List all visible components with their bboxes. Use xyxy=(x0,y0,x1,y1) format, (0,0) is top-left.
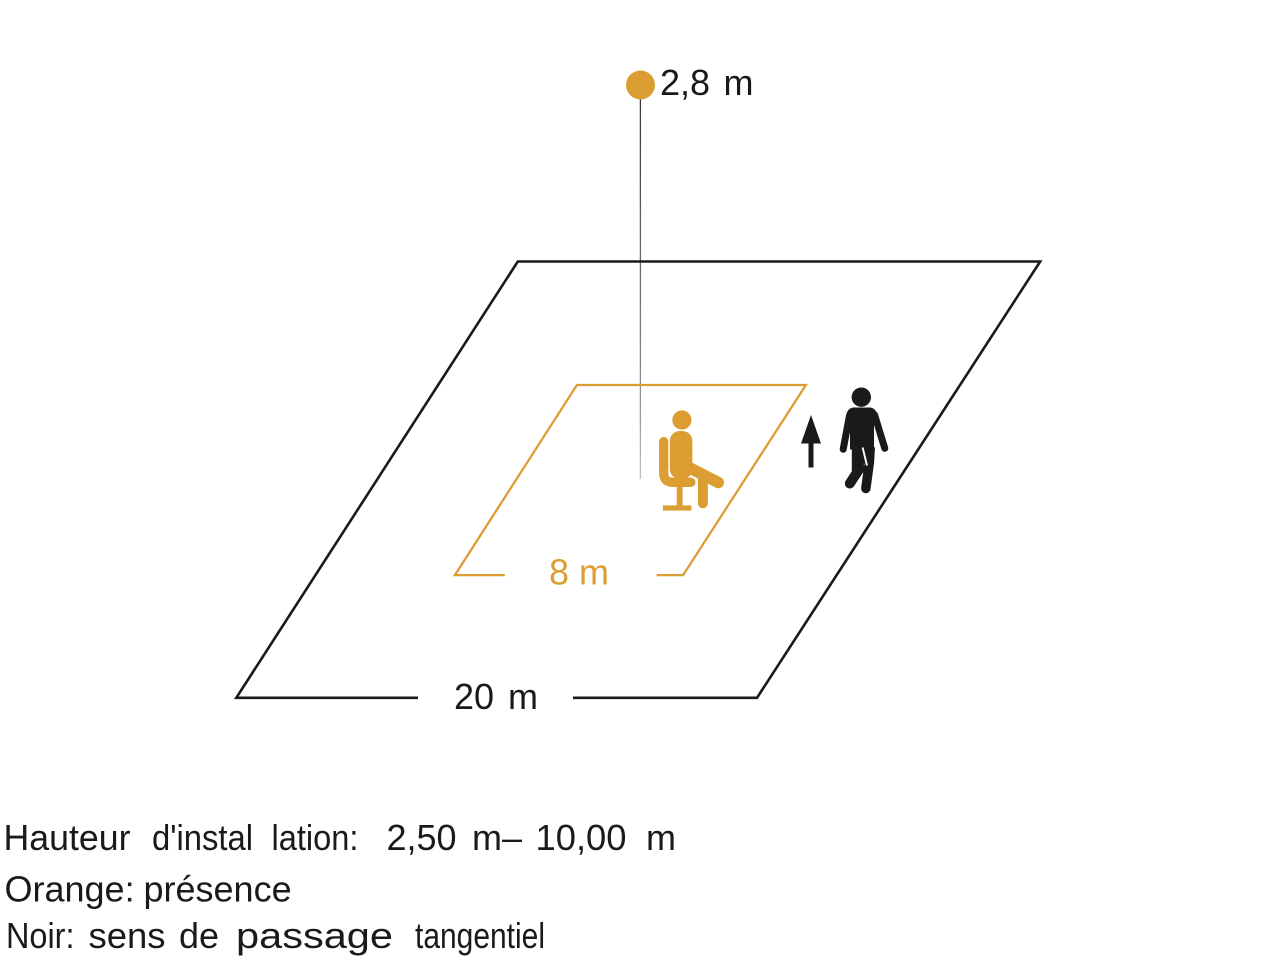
svg-text:Hauteurd'installation:2,50m–10: Hauteurd'installation:2,50m–10,00m xyxy=(4,817,677,858)
svg-text:8 m: 8 m xyxy=(549,552,609,593)
svg-text:20m: 20m xyxy=(454,676,538,717)
svg-text:Noir:sensdepassagetangentiel: Noir:sensdepassagetangentiel xyxy=(6,915,545,956)
svg-text:Orange:présence: Orange:présence xyxy=(5,869,292,910)
svg-text:2,8m: 2,8m xyxy=(660,62,754,103)
